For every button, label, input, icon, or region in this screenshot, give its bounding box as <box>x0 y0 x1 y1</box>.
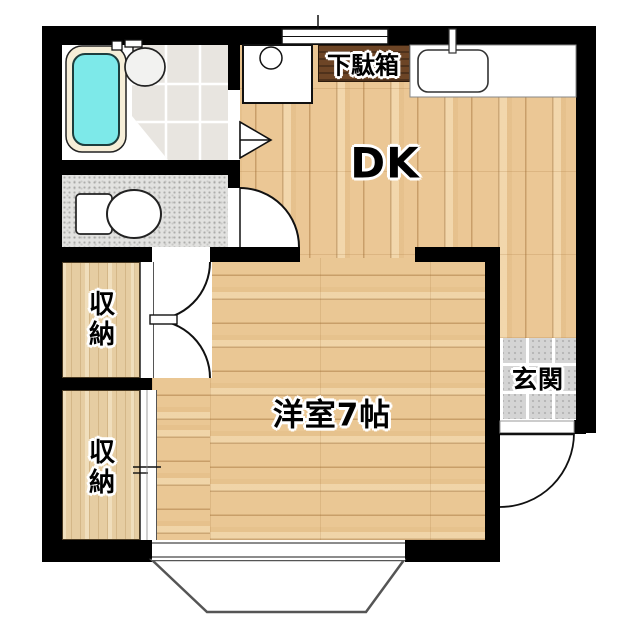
shoe-cabinet-label: 下駄箱 <box>327 46 399 81</box>
toilet <box>76 190 161 238</box>
toilet-door-icon <box>240 188 299 247</box>
sliding-door-icon <box>133 390 161 540</box>
dk-label: DK <box>350 139 419 188</box>
entrance-label: 玄関 <box>512 360 564 396</box>
folding-door-icon <box>240 122 271 158</box>
storage-upper-label: 収納 <box>82 290 119 350</box>
floorplan: DK 洋室7帖 収納 収納 玄関 下駄箱 <box>0 0 640 640</box>
window-top <box>282 15 388 44</box>
western-room-label: 洋室7帖 <box>273 390 392 435</box>
bathtub <box>66 46 126 152</box>
bay-window <box>152 540 405 612</box>
entrance-door-icon <box>500 421 574 507</box>
closet-double-door-icon <box>150 262 210 378</box>
washbasin <box>125 48 165 86</box>
washing-machine-pan <box>243 45 312 103</box>
kitchen-faucet-icon <box>449 29 456 53</box>
kitchen-counter <box>410 29 576 97</box>
storage-lower-label: 収納 <box>82 438 119 498</box>
kitchen-sink <box>418 50 488 92</box>
